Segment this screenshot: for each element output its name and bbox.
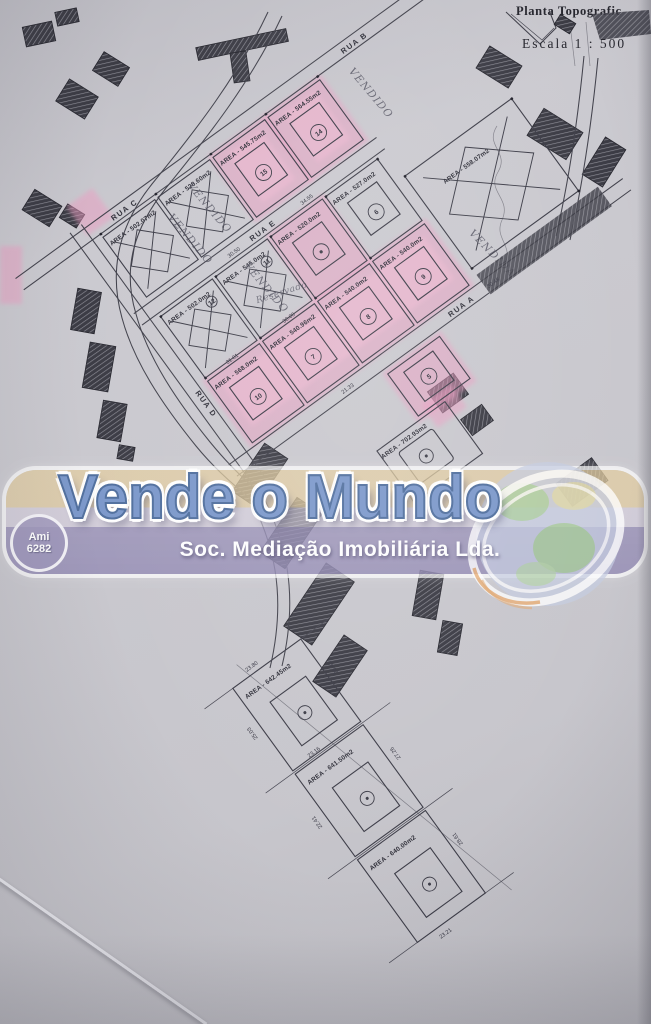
dimension-label: 27.26 — [389, 745, 402, 760]
plan-drawing: Planta Topografic Escala 1 : 500 — [0, 0, 651, 1024]
building — [582, 137, 626, 187]
building — [82, 342, 116, 392]
lot-d3: AREA - 640.00m2 — [357, 810, 485, 942]
scale-label: Escala 1 : 500 — [522, 36, 626, 51]
building — [97, 400, 127, 442]
dimension-label: 25.03 — [246, 726, 259, 741]
dimension-label: 28.61 — [452, 831, 465, 846]
scanned-topographic-plan: Planta Topografic Escala 1 : 500 — [0, 0, 651, 1024]
lot-number: 6 — [373, 209, 380, 217]
lot-area-label: AREA - 702.93m2 — [380, 422, 429, 460]
lot-d2: AREA - 641.50m2 — [295, 725, 423, 857]
building — [284, 563, 355, 645]
street-label-rua-b: RUA B — [339, 30, 369, 55]
lot-area-label: AREA - 558.07m2 — [442, 147, 491, 185]
dimension-label: 23.21 — [439, 927, 454, 940]
lot-area-label: AREA - 640.00m2 — [369, 834, 418, 872]
dimension-label: 23.80 — [245, 660, 260, 673]
dimension-label: 22.41 — [311, 815, 324, 830]
dimension-label: 21.33 — [341, 383, 356, 396]
upper-lot-block: RUA C RUA B RUA E RUA A RUA D AREA - 502… — [13, 0, 651, 615]
building — [260, 497, 322, 568]
building — [22, 21, 56, 47]
building — [22, 189, 62, 226]
building — [117, 445, 135, 462]
building — [71, 288, 102, 334]
title-block: Planta Topografic Escala 1 : 500 — [506, 4, 651, 66]
building — [437, 621, 462, 656]
building — [476, 46, 522, 88]
building — [461, 404, 494, 435]
building — [556, 458, 608, 507]
building — [55, 8, 79, 26]
building — [56, 79, 99, 119]
building — [412, 570, 444, 619]
building — [92, 52, 129, 87]
handwriting-sold: VENDIDO — [346, 66, 395, 122]
